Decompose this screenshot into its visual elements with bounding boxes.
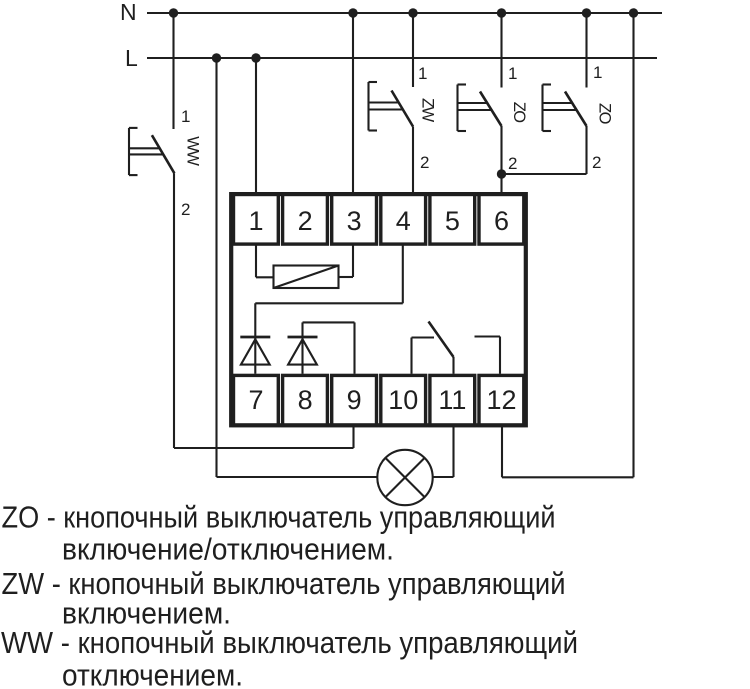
svg-text:1: 1: [418, 64, 427, 83]
svg-text:включение/отключением.: включение/отключением.: [62, 532, 394, 567]
svg-text:2: 2: [420, 153, 429, 172]
svg-text:2: 2: [298, 206, 313, 236]
svg-text:2: 2: [508, 154, 517, 173]
svg-text:2: 2: [592, 153, 601, 172]
svg-text:7: 7: [248, 385, 263, 415]
svg-text:10: 10: [388, 385, 418, 415]
svg-text:1: 1: [181, 107, 190, 126]
svg-text:WW - кнопочный выключатель упр: WW - кнопочный выключатель управляющий: [1, 625, 578, 660]
svg-text:1: 1: [593, 63, 602, 82]
svg-text:1: 1: [248, 206, 263, 236]
svg-text:4: 4: [396, 206, 411, 236]
svg-text:N: N: [120, 0, 137, 25]
svg-text:WW: WW: [183, 136, 201, 166]
svg-text:3: 3: [347, 206, 362, 236]
svg-text:2: 2: [181, 200, 190, 219]
svg-text:6: 6: [494, 206, 509, 236]
svg-text:5: 5: [445, 206, 460, 236]
svg-text:ZO: ZO: [510, 102, 528, 124]
svg-text:ZO - кнопочный выключатель упр: ZO - кнопочный выключатель управляющий: [2, 500, 556, 535]
svg-text:ZO: ZO: [595, 103, 613, 125]
svg-text:1: 1: [508, 64, 517, 83]
svg-text:отключением.: отключением.: [62, 658, 243, 689]
svg-text:8: 8: [298, 385, 313, 415]
svg-text:L: L: [125, 45, 138, 71]
svg-text:12: 12: [486, 385, 516, 415]
svg-text:9: 9: [347, 385, 362, 415]
svg-text:11: 11: [438, 385, 466, 415]
svg-text:ZW: ZW: [418, 98, 436, 123]
